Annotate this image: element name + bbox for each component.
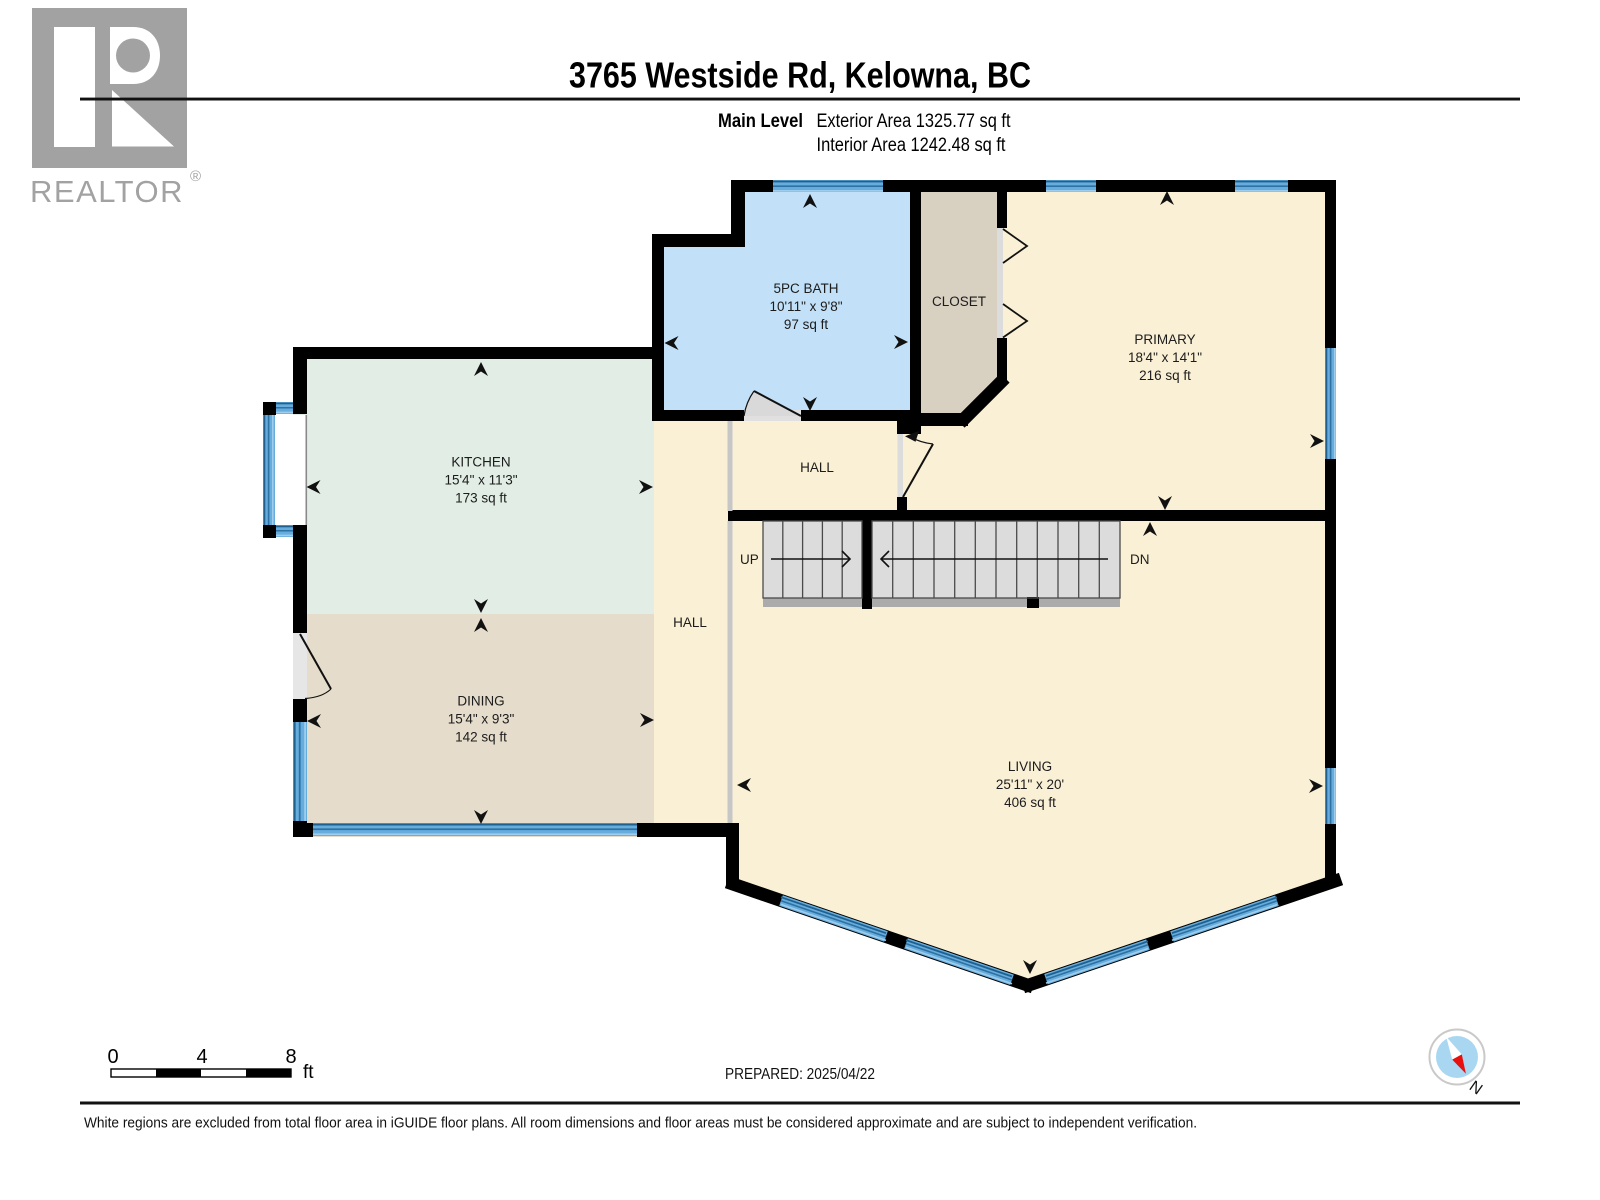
svg-text:97 sq ft: 97 sq ft — [784, 317, 829, 332]
svg-text:25'11" x 20': 25'11" x 20' — [996, 777, 1064, 792]
svg-text:CLOSET: CLOSET — [932, 294, 986, 309]
svg-text:173 sq ft: 173 sq ft — [455, 491, 507, 506]
svg-text:Main Level: Main Level — [718, 111, 803, 132]
svg-text:10'11" x 9'8": 10'11" x 9'8" — [769, 299, 842, 314]
svg-text:15'4" x 11'3": 15'4" x 11'3" — [444, 473, 517, 488]
svg-text:PREPARED: 2025/04/22: PREPARED: 2025/04/22 — [725, 1066, 875, 1083]
svg-text:UP: UP — [740, 552, 759, 567]
svg-text:3765 Westside Rd, Kelowna, BC: 3765 Westside Rd, Kelowna, BC — [569, 55, 1031, 96]
svg-text:DN: DN — [1130, 552, 1150, 567]
svg-text:5PC BATH: 5PC BATH — [773, 281, 838, 296]
svg-text:Interior Area 1242.48 sq ft: Interior Area 1242.48 sq ft — [817, 135, 1007, 156]
svg-text:ft: ft — [303, 1062, 314, 1083]
svg-text:Exterior Area 1325.77 sq ft: Exterior Area 1325.77 sq ft — [817, 111, 1012, 132]
svg-text:HALL: HALL — [800, 460, 834, 475]
svg-text:15'4" x 9'3": 15'4" x 9'3" — [448, 712, 515, 727]
svg-text:406 sq ft: 406 sq ft — [1004, 795, 1056, 810]
svg-text:LIVING: LIVING — [1008, 759, 1052, 774]
svg-text:8: 8 — [285, 1046, 296, 1068]
svg-text:KITCHEN: KITCHEN — [451, 455, 510, 470]
svg-text:142 sq ft: 142 sq ft — [455, 730, 507, 745]
svg-text:DINING: DINING — [457, 694, 504, 709]
svg-text:216 sq ft: 216 sq ft — [1139, 368, 1191, 383]
svg-text:PRIMARY: PRIMARY — [1134, 332, 1195, 347]
svg-text:®: ® — [190, 168, 201, 185]
svg-text:4: 4 — [196, 1046, 207, 1068]
svg-text:REALTOR: REALTOR — [30, 174, 184, 209]
svg-text:18'4" x 14'1": 18'4" x 14'1" — [1128, 350, 1202, 365]
svg-text:White regions are excluded fro: White regions are excluded from total fl… — [84, 1115, 1197, 1132]
svg-text:0: 0 — [107, 1046, 118, 1068]
svg-text:HALL: HALL — [673, 615, 707, 630]
